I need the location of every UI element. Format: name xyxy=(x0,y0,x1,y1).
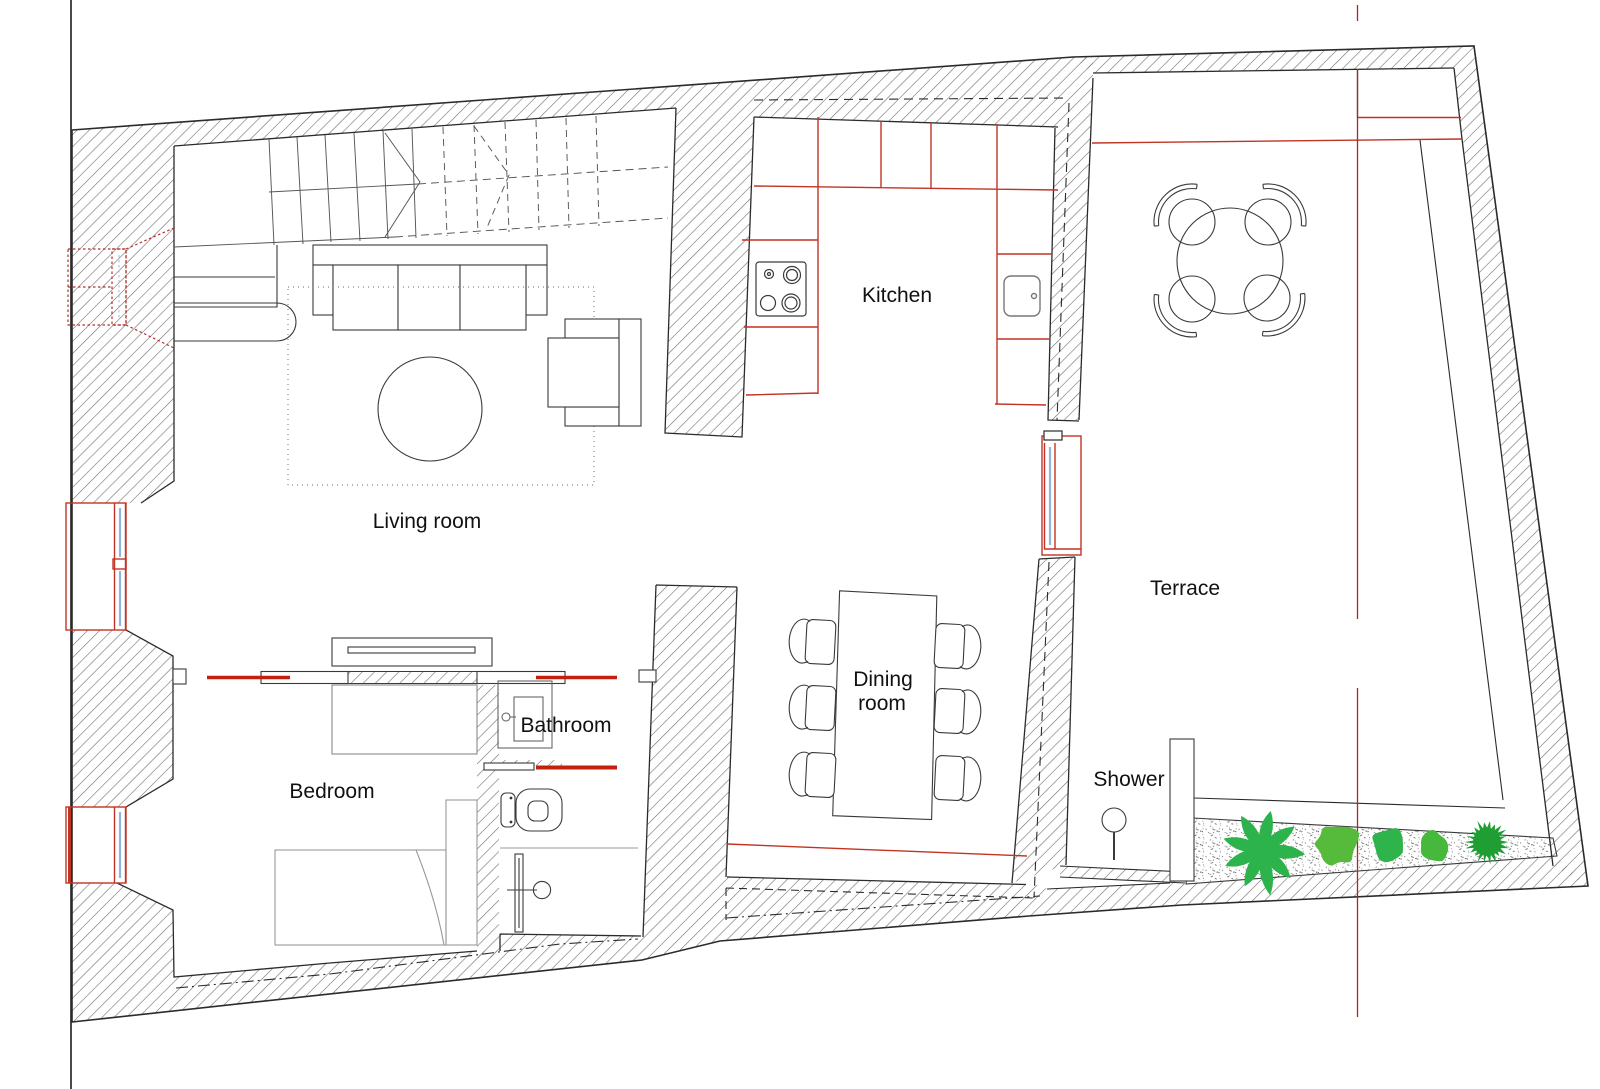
svg-text:Living room: Living room xyxy=(373,510,482,533)
svg-text:Kitchen: Kitchen xyxy=(862,284,932,307)
svg-text:Bathroom: Bathroom xyxy=(520,714,611,737)
svg-text:Shower: Shower xyxy=(1093,768,1164,791)
svg-text:room: room xyxy=(858,692,906,715)
svg-text:Bedroom: Bedroom xyxy=(289,780,374,803)
svg-text:Dining: Dining xyxy=(853,668,913,691)
svg-text:Terrace: Terrace xyxy=(1150,577,1220,600)
